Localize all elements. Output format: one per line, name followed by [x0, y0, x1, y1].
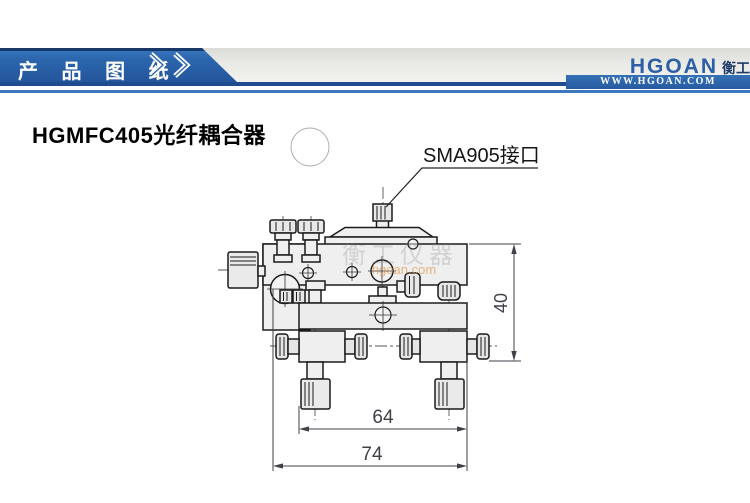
- base-bar: [299, 301, 467, 329]
- thumbscrew-2: [298, 220, 324, 262]
- watermark-url: hgoan.com: [372, 262, 436, 277]
- thumbscrew-1: [270, 220, 296, 262]
- dim-label-74: 74: [361, 444, 383, 465]
- dim-label-64: 64: [372, 407, 394, 428]
- watermark-circle: [291, 128, 329, 166]
- chevrons-icon: [147, 52, 211, 78]
- product-drawing-page: { "banner": { "title": "产 品 图 纸" }, "log…: [0, 0, 750, 503]
- bottom-knobs: [301, 362, 464, 409]
- lower-block-right: [420, 331, 467, 362]
- sma-callout: SMA905接口: [386, 144, 540, 207]
- dim-label-40: 40: [491, 293, 511, 313]
- sma-callout-label: SMA905接口: [423, 144, 540, 167]
- fiber-coupler-drawing: 衡工仪器 hgoan.com 40 64 74: [0, 83, 750, 503]
- logo-text-cn: 衡工: [722, 60, 750, 76]
- coupler-body: [228, 204, 489, 409]
- hgoan-logo: HGOAN衡工: [566, 55, 750, 75]
- lower-block-left: [299, 331, 345, 362]
- left-adjust-knob: [228, 252, 265, 288]
